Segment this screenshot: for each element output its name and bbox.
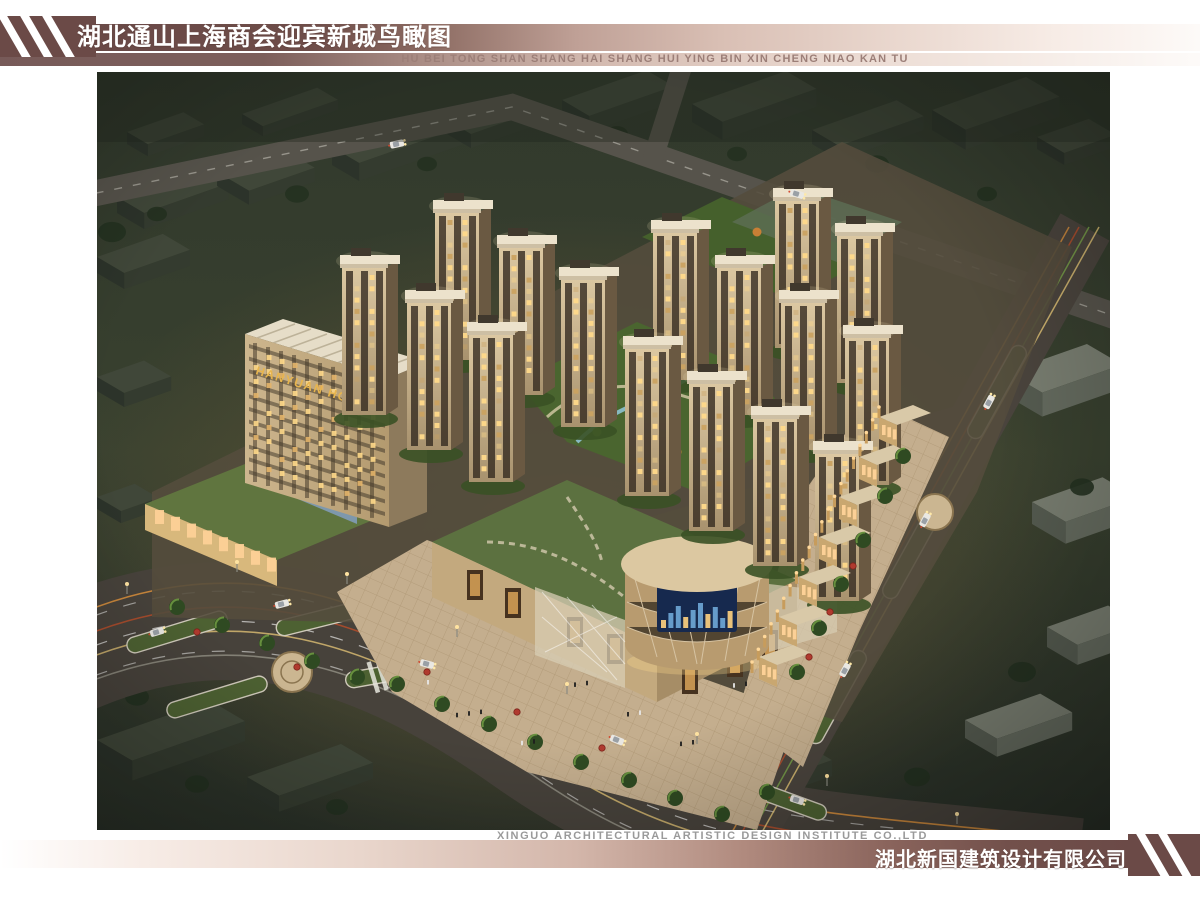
corner-stripes-icon <box>1128 834 1200 876</box>
top-haze <box>97 72 1110 142</box>
vignette <box>97 72 1110 830</box>
aerial-rendering-canvas: HANYUAN HOTEL <box>97 72 1110 830</box>
presentation-board: 湖北通山上海商会迎宾新城鸟瞰图 HU BEI TONG SHAN SHANG H… <box>0 0 1200 900</box>
designer-name-cn: 湖北新国建筑设计有限公司 <box>875 843 1127 872</box>
page-title-pinyin: HU BEI TONG SHAN SHANG HAI SHANG HUI YIN… <box>380 53 930 66</box>
page-title: 湖北通山上海商会迎宾新城鸟瞰图 <box>77 25 452 50</box>
aerial-rendering: HANYUAN HOTEL <box>97 72 1110 830</box>
